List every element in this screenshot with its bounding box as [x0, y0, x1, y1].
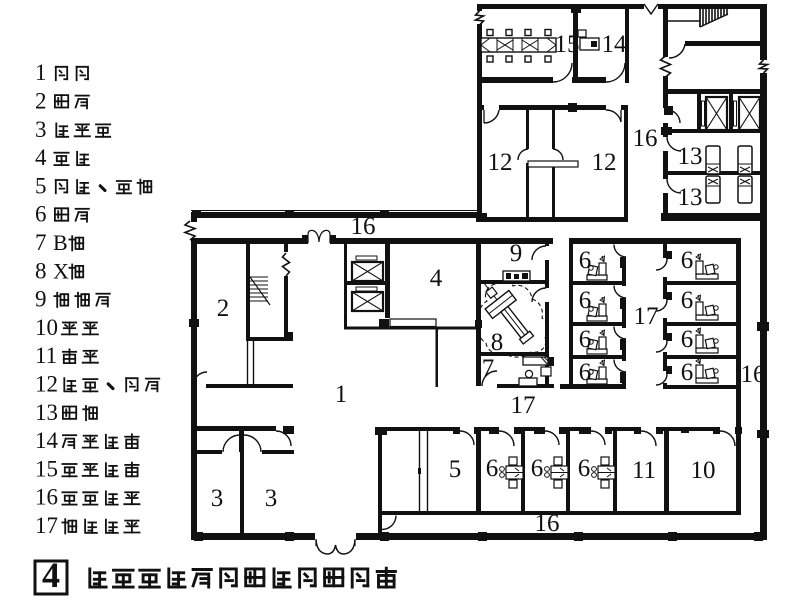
svg-text:6: 6 — [681, 247, 694, 274]
svg-text:6: 6 — [681, 326, 694, 353]
svg-text:13: 13 — [678, 184, 703, 211]
svg-text:6: 6 — [486, 455, 499, 482]
svg-text:2: 2 — [35, 89, 47, 114]
svg-text:6: 6 — [579, 326, 592, 353]
svg-text:11: 11 — [35, 343, 57, 368]
svg-text:6: 6 — [531, 455, 544, 482]
svg-text:15: 15 — [35, 456, 58, 481]
svg-text:6: 6 — [681, 287, 694, 314]
svg-text:2: 2 — [217, 295, 230, 322]
svg-text:14: 14 — [602, 31, 628, 58]
svg-text:3: 3 — [35, 117, 47, 142]
svg-text:9: 9 — [510, 240, 523, 267]
svg-text:6: 6 — [579, 359, 592, 386]
svg-text:7: 7 — [482, 355, 495, 382]
svg-text:10: 10 — [35, 315, 58, 340]
svg-text:8: 8 — [491, 329, 504, 356]
svg-text:8: 8 — [35, 258, 47, 283]
svg-text:6: 6 — [681, 359, 694, 386]
svg-text:5: 5 — [449, 456, 462, 483]
svg-text:1: 1 — [35, 60, 47, 85]
svg-text:16: 16 — [633, 125, 658, 152]
svg-text:16: 16 — [741, 361, 766, 388]
svg-text:3: 3 — [265, 485, 278, 512]
svg-text:12: 12 — [592, 149, 617, 176]
svg-text:4: 4 — [35, 145, 47, 170]
svg-text:16: 16 — [351, 213, 376, 240]
svg-text:6: 6 — [35, 202, 47, 227]
svg-text:B: B — [53, 230, 68, 255]
svg-text:4: 4 — [42, 555, 60, 595]
svg-text:14: 14 — [35, 428, 59, 453]
svg-text:17: 17 — [634, 303, 659, 330]
svg-text:17: 17 — [511, 392, 536, 419]
svg-text:7: 7 — [35, 230, 47, 255]
svg-text:13: 13 — [678, 143, 703, 170]
svg-text:17: 17 — [35, 513, 58, 538]
svg-text:X: X — [53, 258, 69, 283]
svg-text:6: 6 — [579, 287, 592, 314]
svg-text:16: 16 — [35, 485, 58, 510]
svg-text:15: 15 — [555, 31, 580, 58]
svg-text:13: 13 — [35, 400, 58, 425]
svg-text:12: 12 — [35, 372, 58, 397]
svg-text:4: 4 — [430, 265, 443, 292]
svg-text:3: 3 — [211, 485, 224, 512]
svg-text:6: 6 — [578, 455, 591, 482]
svg-text:6: 6 — [579, 247, 592, 274]
svg-text:1: 1 — [335, 381, 348, 408]
svg-text:5: 5 — [35, 173, 47, 198]
svg-text:12: 12 — [488, 149, 513, 176]
svg-text:11: 11 — [632, 457, 656, 484]
svg-text:16: 16 — [535, 510, 560, 537]
svg-text:9: 9 — [35, 287, 47, 312]
svg-text:10: 10 — [691, 457, 716, 484]
